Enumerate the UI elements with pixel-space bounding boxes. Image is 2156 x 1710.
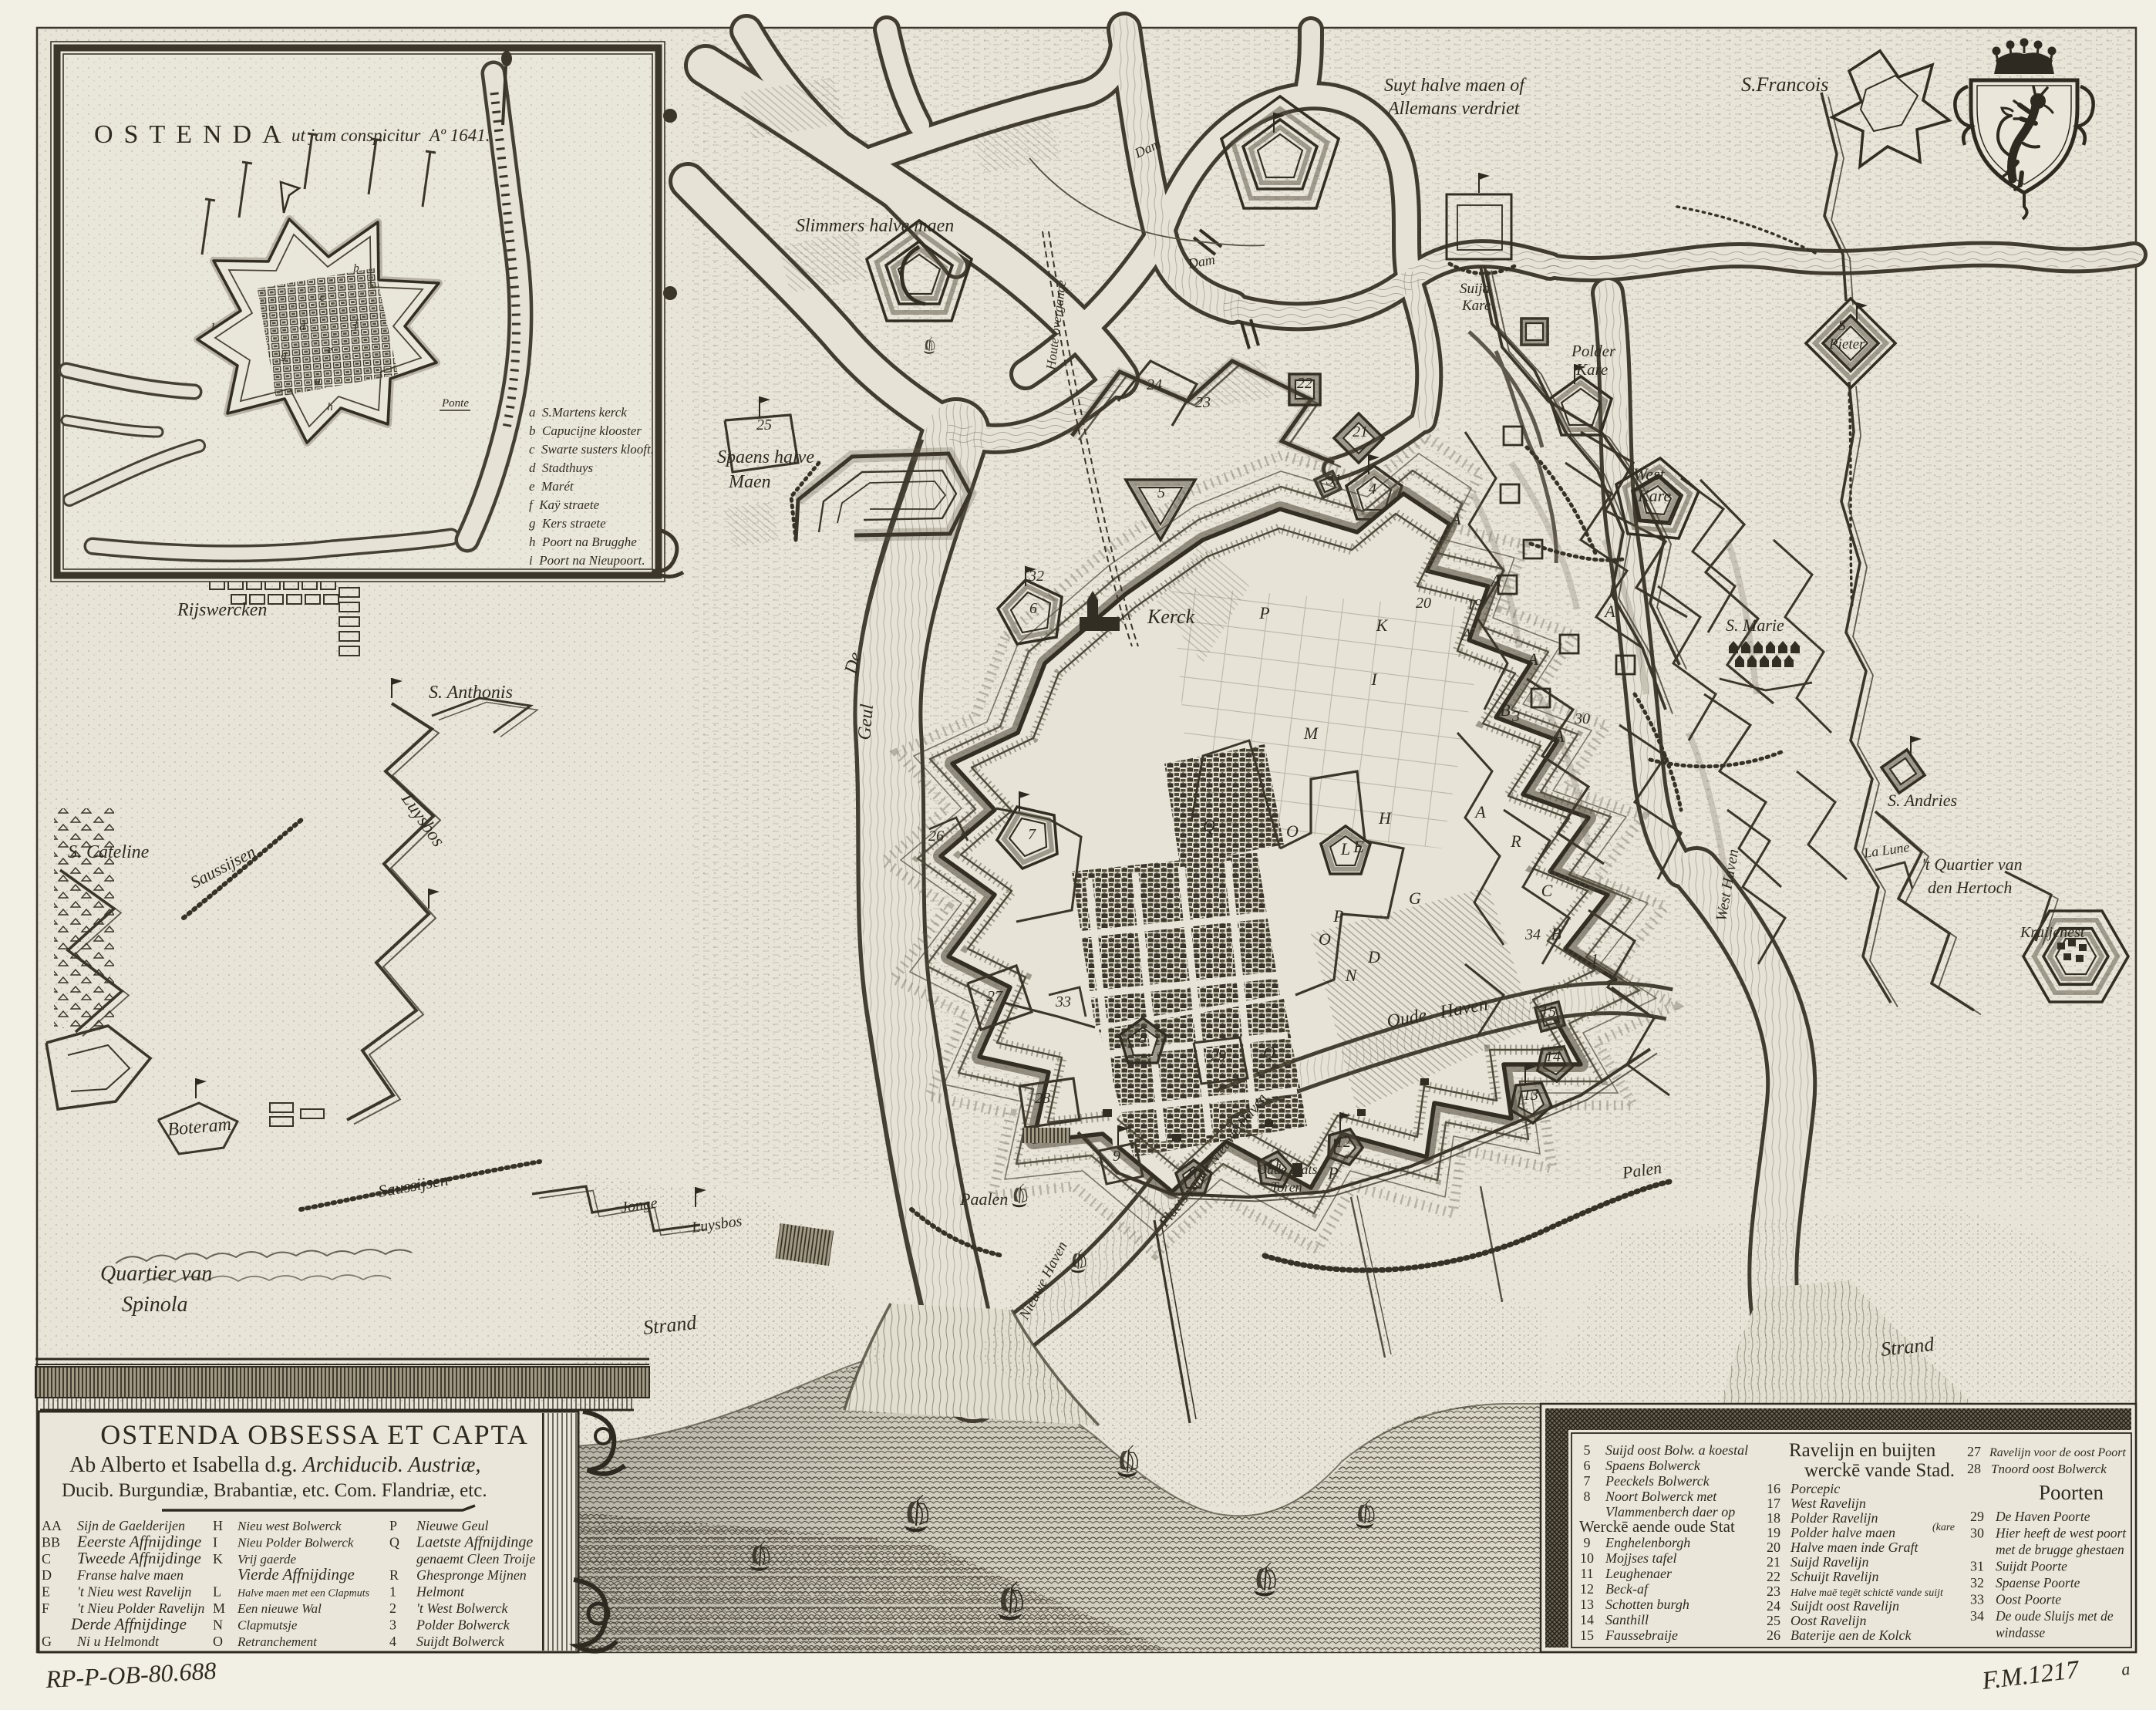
- svg-text:Halve maen inde Graft: Halve maen inde Graft: [1790, 1540, 1919, 1555]
- svg-text:16: 16: [1767, 1481, 1780, 1496]
- svg-text:17: 17: [1767, 1496, 1780, 1511]
- svg-text:12: 12: [1580, 1581, 1594, 1597]
- svg-text:Kare: Kare: [1575, 360, 1608, 379]
- svg-text:Tweede Affnijdinge: Tweede Affnijdinge: [77, 1549, 201, 1567]
- svg-text:28: 28: [1035, 1090, 1050, 1107]
- svg-text:Franse halve maen: Franse halve maen: [76, 1567, 184, 1583]
- svg-text:18: 18: [1767, 1510, 1780, 1526]
- svg-text:N: N: [213, 1617, 223, 1632]
- svg-text:Clapmutsje: Clapmutsje: [237, 1617, 298, 1632]
- svg-text:9: 9: [1113, 1148, 1120, 1165]
- svg-text:S. Cateline: S. Cateline: [68, 842, 150, 862]
- svg-text:6: 6: [1029, 600, 1037, 617]
- svg-text:I: I: [213, 1534, 217, 1550]
- svg-text:4: 4: [389, 1634, 396, 1649]
- svg-text:3: 3: [1511, 708, 1520, 725]
- svg-text:Derde Affnijdinge: Derde Affnijdinge: [70, 1614, 187, 1633]
- svg-text:7: 7: [1584, 1473, 1591, 1489]
- svg-text:23: 23: [1195, 394, 1211, 411]
- svg-text:D: D: [42, 1567, 52, 1583]
- svg-text:4: 4: [1369, 481, 1376, 497]
- svg-text:32: 32: [1970, 1575, 1984, 1590]
- svg-text:e Marét: e Marét: [529, 479, 574, 494]
- svg-text:Baterije aen de Kolck: Baterije aen de Kolck: [1790, 1627, 1912, 1643]
- svg-text:Mojjses tafel: Mojjses tafel: [1605, 1550, 1677, 1566]
- svg-text:24: 24: [1147, 376, 1162, 393]
- svg-text:32: 32: [1028, 568, 1044, 585]
- svg-text:H: H: [213, 1518, 223, 1533]
- svg-text:14: 14: [1580, 1612, 1594, 1627]
- svg-text:A: A: [1489, 571, 1501, 590]
- svg-text:A: A: [1460, 625, 1472, 644]
- svg-text:27: 27: [987, 988, 1003, 1005]
- svg-text:Ravelijn voor de oost Poort: Ravelijn voor de oost Poort: [1989, 1446, 2126, 1459]
- svg-text:Q: Q: [1263, 1043, 1275, 1062]
- svg-text:genaemt Cleen Troije: genaemt Cleen Troije: [416, 1551, 535, 1567]
- svg-text:Kerck: Kerck: [1147, 605, 1195, 628]
- svg-text:i Poort na Nieupoort.: i Poort na Nieupoort.: [529, 553, 645, 568]
- svg-text:Eeerste Affnijdinge: Eeerste Affnijdinge: [76, 1532, 201, 1550]
- svg-text:Santhill: Santhill: [1605, 1612, 1649, 1627]
- svg-text:26: 26: [1767, 1627, 1780, 1643]
- svg-text:Kraijenest: Kraijenest: [2020, 924, 2085, 941]
- svg-text:C: C: [1541, 881, 1553, 900]
- svg-text:d: d: [299, 321, 305, 333]
- svg-text:33: 33: [1970, 1592, 1984, 1607]
- svg-text:H: H: [1378, 808, 1392, 828]
- svg-text:Suijdt Poorte: Suijdt Poorte: [1996, 1559, 2067, 1574]
- svg-text:b: b: [353, 262, 359, 275]
- svg-text:Suijd Ravelijn: Suijd Ravelijn: [1790, 1554, 1868, 1570]
- svg-text:Faussebraije: Faussebraije: [1605, 1627, 1678, 1643]
- svg-text:30: 30: [1574, 710, 1590, 727]
- svg-text:Schuijt Ravelijn: Schuijt Ravelijn: [1790, 1569, 1878, 1584]
- svg-text:Ghespronge Mijnen: Ghespronge Mijnen: [416, 1567, 527, 1583]
- svg-text:Beck-af: Beck-af: [1605, 1581, 1650, 1597]
- svg-text:B: B: [1500, 700, 1510, 720]
- svg-text:S.: S.: [1838, 318, 1849, 334]
- svg-text:13: 13: [1523, 1087, 1538, 1104]
- svg-text:Spinola: Spinola: [122, 1293, 188, 1317]
- svg-text:Schotten burgh: Schotten burgh: [1605, 1597, 1689, 1612]
- svg-text:'t Quartier van: 't Quartier van: [1922, 855, 2023, 874]
- svg-text:Spaens halve: Spaens halve: [717, 447, 814, 467]
- svg-text:31: 31: [1326, 471, 1342, 488]
- svg-text:West Ravelijn: West Ravelijn: [1790, 1496, 1866, 1511]
- svg-text:Ponte: Ponte: [441, 397, 469, 410]
- svg-text:19: 19: [1767, 1525, 1780, 1540]
- svg-text:G: G: [42, 1634, 52, 1649]
- svg-text:Hier heeft de west poort: Hier heeft de west poort: [1995, 1526, 2127, 1541]
- svg-text:1: 1: [210, 321, 216, 333]
- svg-text:P: P: [1332, 906, 1343, 926]
- svg-text:34: 34: [1524, 926, 1541, 943]
- svg-text:A: A: [1449, 509, 1461, 528]
- svg-text:L: L: [213, 1584, 221, 1600]
- svg-text:Helmont: Helmont: [416, 1584, 465, 1600]
- svg-text:11: 11: [1267, 1156, 1282, 1173]
- svg-text:h: h: [327, 401, 333, 413]
- svg-text:F: F: [42, 1600, 49, 1616]
- svg-text:Porcepic: Porcepic: [1790, 1481, 1840, 1496]
- svg-text:Oost Poorte: Oost Poorte: [1996, 1592, 2061, 1607]
- svg-text:Vierde Affnijdinge: Vierde Affnijdinge: [237, 1565, 355, 1584]
- svg-text:S. Andries: S. Andries: [1888, 791, 1957, 810]
- svg-text:R: R: [389, 1567, 399, 1583]
- svg-text:28: 28: [1967, 1461, 1981, 1476]
- svg-text:Enghelenborgh: Enghelenborgh: [1605, 1535, 1690, 1550]
- svg-text:Kare: Kare: [1637, 486, 1671, 505]
- svg-text:26: 26: [928, 828, 944, 845]
- svg-text:N: N: [1345, 966, 1358, 985]
- svg-text:7: 7: [1028, 826, 1036, 843]
- svg-text:Peeckels Bolwerck: Peeckels Bolwerck: [1605, 1473, 1710, 1489]
- svg-text:De oude Sluijs met de: De oude Sluijs met de: [1995, 1608, 2114, 1624]
- svg-text:27: 27: [1967, 1444, 1981, 1459]
- svg-text:e: e: [328, 344, 333, 356]
- svg-text:AA: AA: [42, 1518, 62, 1533]
- svg-text:werckē vande Stad.: werckē vande Stad.: [1804, 1460, 1955, 1481]
- svg-text:20: 20: [1416, 595, 1431, 612]
- svg-text:Polder Bolwerck: Polder Bolwerck: [416, 1617, 510, 1632]
- svg-text:Polder Ravelijn: Polder Ravelijn: [1790, 1510, 1878, 1526]
- svg-text:Polder: Polder: [1571, 342, 1616, 360]
- svg-text:OSTENDA: OSTENDA: [94, 120, 292, 149]
- svg-text:5: 5: [1584, 1442, 1591, 1458]
- svg-text:29: 29: [1970, 1509, 1984, 1524]
- svg-text:'t West Bolwerck: 't West Bolwerck: [416, 1600, 509, 1616]
- svg-text:30: 30: [1970, 1526, 1984, 1541]
- svg-text:K: K: [1376, 616, 1389, 635]
- svg-text:Retranchement: Retranchement: [237, 1634, 318, 1649]
- svg-text:Geul: Geul: [854, 703, 878, 740]
- svg-text:OSTENDA OBSESSA ET CAPTA: OSTENDA OBSESSA ET CAPTA: [100, 1419, 529, 1450]
- svg-text:Tnoord oost Bolwerck: Tnoord oost Bolwerck: [1991, 1462, 2107, 1476]
- svg-text:West: West: [1633, 464, 1666, 484]
- svg-text:Suijd oost Bolw. a koestal: Suijd oost Bolw. a koestal: [1605, 1442, 1748, 1458]
- svg-text:Ravelijn en buijten: Ravelijn en buijten: [1789, 1440, 1936, 1461]
- svg-text:Pieter: Pieter: [1828, 336, 1865, 352]
- svg-text:19: 19: [1467, 596, 1482, 613]
- svg-text:a: a: [315, 375, 321, 387]
- svg-text:Suyt halve maen of: Suyt halve maen of: [1384, 76, 1527, 96]
- svg-text:K: K: [213, 1551, 223, 1567]
- svg-text:25: 25: [756, 417, 772, 433]
- svg-text:d Stadthuys: d Stadthuys: [529, 460, 593, 475]
- svg-text:20: 20: [1767, 1540, 1780, 1555]
- svg-text:O: O: [1286, 821, 1299, 841]
- svg-text:M: M: [1303, 723, 1319, 743]
- svg-text:Q: Q: [1203, 816, 1215, 835]
- svg-text:Vrij gaerde: Vrij gaerde: [237, 1552, 296, 1567]
- svg-text:Kare: Kare: [1461, 298, 1491, 314]
- svg-text:f Kaÿ straete: f Kaÿ straete: [529, 497, 600, 512]
- svg-text:22: 22: [1297, 375, 1312, 392]
- svg-text:6: 6: [1584, 1458, 1591, 1473]
- svg-text:29: 29: [1211, 1047, 1226, 1064]
- svg-text:8: 8: [1139, 1030, 1147, 1047]
- svg-text:Paalen: Paalen: [959, 1189, 1008, 1209]
- svg-text:Laetste Affnijdinge: Laetste Affnijdinge: [416, 1533, 533, 1550]
- svg-text:Werckē aende oude Stat: Werckē aende oude Stat: [1579, 1517, 1735, 1536]
- svg-text:Nieuwe Geul: Nieuwe Geul: [416, 1518, 488, 1533]
- svg-text:C: C: [42, 1551, 51, 1567]
- svg-text:Nieu Polder Bolwerck: Nieu Polder Bolwerck: [237, 1535, 354, 1550]
- svg-text:Halve maē tegēt schictē vande: Halve maē tegēt schictē vande suijt: [1790, 1587, 1944, 1599]
- svg-text:31: 31: [1970, 1559, 1984, 1574]
- svg-text:h Poort na Brugghe: h Poort na Brugghe: [529, 535, 637, 549]
- svg-text:b Capucijne klooster: b Capucijne klooster: [529, 423, 642, 438]
- svg-text:M: M: [213, 1600, 225, 1616]
- svg-text:13: 13: [1580, 1597, 1594, 1612]
- svg-text:14: 14: [1545, 1048, 1561, 1065]
- svg-text:Toren: Toren: [1271, 1179, 1302, 1195]
- svg-text:10: 10: [1186, 1165, 1201, 1182]
- svg-text:Maen: Maen: [728, 472, 771, 492]
- svg-text:Spaens Bolwerck: Spaens Bolwerck: [1605, 1458, 1701, 1473]
- svg-text:8: 8: [1584, 1489, 1591, 1504]
- svg-text:Halve maen met een Clapmuts: Halve maen met een Clapmuts: [237, 1588, 370, 1600]
- svg-text:BB: BB: [42, 1534, 60, 1550]
- svg-text:33: 33: [1055, 993, 1071, 1010]
- svg-text:Quartier van: Quartier van: [100, 1262, 212, 1286]
- svg-text:Ducib. Burgundiæ, Brabantiæ, e: Ducib. Burgundiæ, Brabantiæ, etc. Com. F…: [62, 1480, 487, 1501]
- svg-text:O: O: [1319, 929, 1331, 949]
- svg-text:windasse: windasse: [1996, 1625, 2045, 1641]
- svg-text:Leughenaer: Leughenaer: [1605, 1566, 1673, 1581]
- svg-text:15: 15: [1541, 1003, 1556, 1020]
- svg-text:P: P: [1258, 603, 1269, 622]
- svg-text:c: c: [320, 292, 325, 304]
- svg-text:E: E: [1353, 837, 1364, 856]
- svg-text:21: 21: [1767, 1554, 1780, 1570]
- svg-text:Spaense Poorte: Spaense Poorte: [1996, 1575, 2080, 1590]
- svg-text:Suijdt Bolwerck: Suijdt Bolwerck: [416, 1634, 505, 1649]
- svg-text:S. Anthonis: S. Anthonis: [429, 683, 513, 703]
- svg-text:S.Francois: S.Francois: [1741, 73, 1828, 96]
- svg-text:met de brugge ghestaen: met de brugge ghestaen: [1996, 1542, 2124, 1557]
- svg-text:Q: Q: [389, 1534, 399, 1550]
- svg-text:15: 15: [1580, 1627, 1594, 1643]
- svg-text:9: 9: [1584, 1535, 1591, 1550]
- svg-text:34: 34: [1970, 1608, 1984, 1624]
- svg-text:A: A: [1474, 802, 1486, 821]
- svg-text:11: 11: [1580, 1566, 1593, 1581]
- svg-text:A: A: [1526, 649, 1538, 669]
- svg-text:De Haven Poorte: De Haven Poorte: [1995, 1509, 2090, 1524]
- svg-text:Sijn de Gaelderijen: Sijn de Gaelderijen: [77, 1518, 185, 1533]
- svg-text:Polder halve maen: Polder halve maen: [1790, 1525, 1895, 1540]
- svg-text:c Swarte susters klooft.: c Swarte susters klooft.: [529, 442, 654, 457]
- svg-text:G: G: [1409, 889, 1421, 908]
- svg-text:Een nieuwe Wal: Een nieuwe Wal: [237, 1601, 322, 1616]
- svg-text:O: O: [213, 1634, 223, 1649]
- svg-text:a S.Martens kerck: a S.Martens kerck: [529, 405, 627, 420]
- svg-text:24: 24: [1767, 1598, 1780, 1614]
- svg-text:Nieu west Bolwerck: Nieu west Bolwerck: [237, 1519, 342, 1533]
- svg-text:'t Nieu west Ravelijn: 't Nieu west Ravelijn: [77, 1584, 191, 1600]
- svg-text:g Kers straete: g Kers straete: [529, 516, 606, 531]
- svg-text:23: 23: [1767, 1584, 1780, 1599]
- svg-text:Slimmers halve maen: Slimmers halve maen: [796, 216, 954, 236]
- svg-text:S. Marie: S. Marie: [1726, 616, 1784, 635]
- svg-text:den Hertoch: den Hertoch: [1928, 878, 2012, 897]
- svg-text:2: 2: [389, 1600, 396, 1616]
- svg-text:12: 12: [1336, 1134, 1351, 1151]
- svg-text:R: R: [1510, 831, 1521, 851]
- svg-text:E: E: [42, 1584, 50, 1600]
- svg-text:Ab Alberto et Isabella d.g. Ar: Ab Alberto et Isabella d.g. Archiducib. …: [69, 1453, 480, 1477]
- svg-text:5: 5: [1157, 484, 1165, 501]
- svg-text:Ni u Helmondt: Ni u Helmondt: [76, 1634, 160, 1649]
- svg-text:A: A: [1603, 602, 1615, 621]
- svg-text:(kare: (kare: [1932, 1522, 1955, 1533]
- svg-text:Suijdt oost Ravelijn: Suijdt oost Ravelijn: [1790, 1598, 1899, 1614]
- svg-text:10: 10: [1580, 1550, 1594, 1566]
- svg-text:21: 21: [1353, 423, 1368, 440]
- svg-text:25: 25: [1767, 1613, 1780, 1628]
- svg-text:L: L: [1340, 839, 1350, 858]
- svg-text:A: A: [1552, 727, 1565, 746]
- svg-text:Noort Bolwerck met: Noort Bolwerck met: [1605, 1489, 1717, 1504]
- svg-text:Rijswercken: Rijswercken: [177, 600, 267, 620]
- svg-text:22: 22: [1767, 1569, 1780, 1584]
- svg-text:D: D: [1367, 947, 1380, 966]
- svg-text:3: 3: [389, 1617, 396, 1632]
- svg-text:1: 1: [389, 1584, 396, 1600]
- svg-text:Suijd: Suijd: [1460, 281, 1491, 297]
- svg-text:Oost Ravelijn: Oost Ravelijn: [1790, 1613, 1866, 1628]
- svg-text:P: P: [1327, 1163, 1338, 1182]
- svg-text:Allemans verdriet: Allemans verdriet: [1386, 99, 1521, 119]
- svg-text:'t Nieu Polder Ravelijn: 't Nieu Polder Ravelijn: [77, 1600, 204, 1616]
- svg-text:1: 1: [1591, 951, 1598, 968]
- svg-text:Poorten: Poorten: [2039, 1481, 2104, 1504]
- svg-text:g: g: [281, 349, 287, 362]
- svg-text:ut jam conspicitur Aº 1641.: ut jam conspicitur Aº 1641.: [291, 126, 490, 145]
- svg-text:B: B: [1551, 924, 1561, 943]
- svg-text:P: P: [389, 1518, 397, 1533]
